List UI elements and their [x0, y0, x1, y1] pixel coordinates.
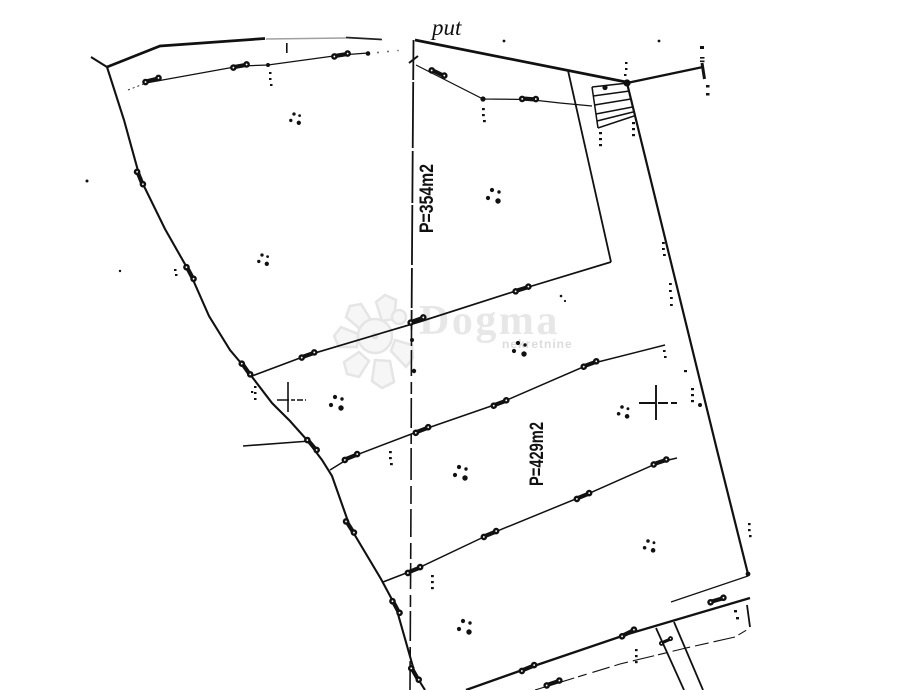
svg-text:put: put — [430, 15, 462, 40]
svg-text:P=429m2: P=429m2 — [526, 422, 548, 486]
svg-text:nekretnine: nekretnine — [502, 337, 573, 351]
svg-text:P=354m2: P=354m2 — [416, 164, 438, 233]
